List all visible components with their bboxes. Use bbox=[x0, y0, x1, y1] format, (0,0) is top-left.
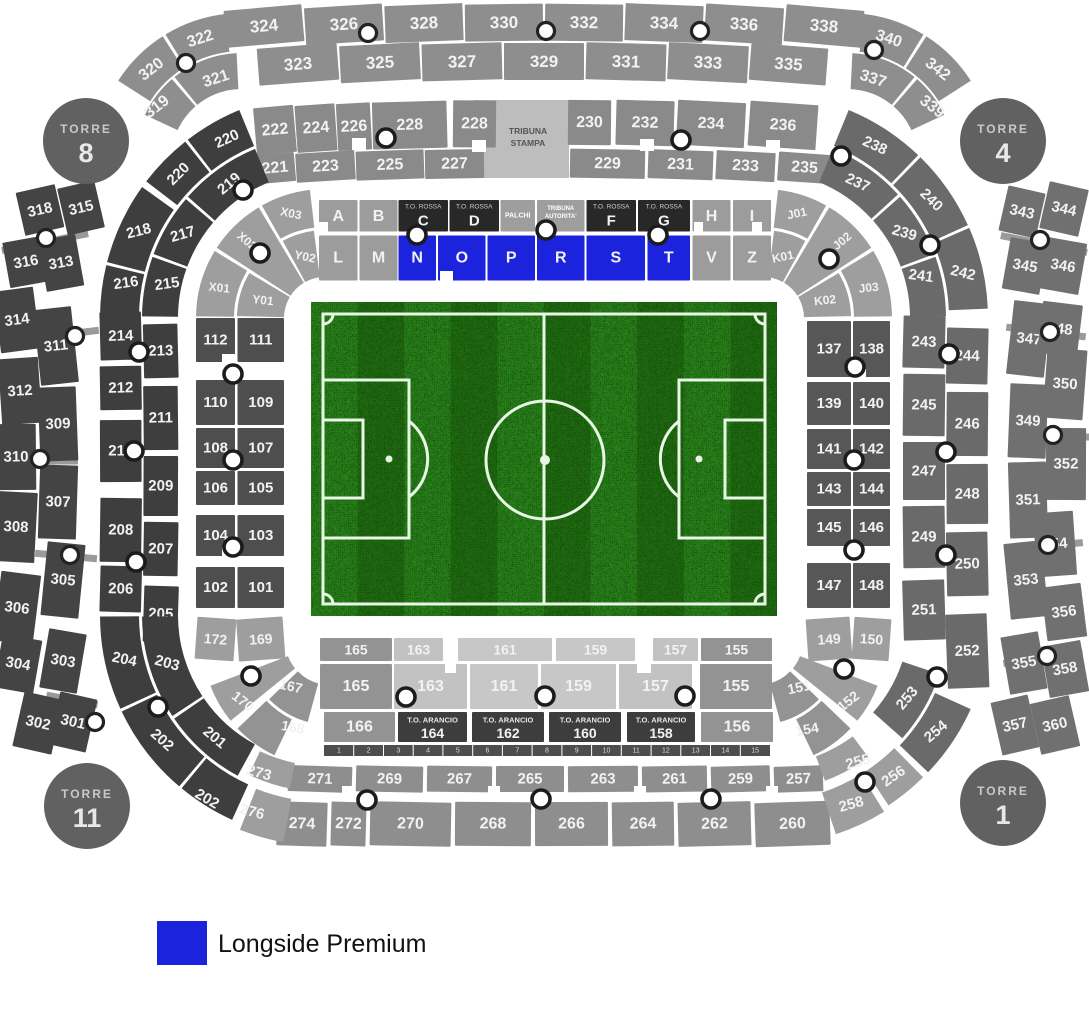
svg-text:257: 257 bbox=[786, 770, 812, 788]
svg-text:333: 333 bbox=[693, 52, 722, 72]
svg-text:229: 229 bbox=[594, 155, 621, 172]
svg-text:306: 306 bbox=[4, 598, 31, 618]
svg-text:140: 140 bbox=[859, 395, 884, 412]
svg-text:D: D bbox=[469, 213, 480, 230]
svg-text:235: 235 bbox=[791, 158, 819, 177]
svg-text:3: 3 bbox=[396, 748, 400, 755]
svg-text:248: 248 bbox=[955, 485, 980, 502]
svg-text:169: 169 bbox=[249, 630, 274, 648]
svg-text:334: 334 bbox=[649, 13, 679, 33]
svg-text:250: 250 bbox=[955, 555, 980, 573]
svg-text:145: 145 bbox=[816, 519, 841, 536]
svg-text:STAMPA: STAMPA bbox=[511, 138, 546, 148]
svg-text:8: 8 bbox=[78, 138, 93, 168]
svg-text:110: 110 bbox=[203, 394, 227, 411]
svg-text:15: 15 bbox=[751, 748, 759, 755]
svg-text:137: 137 bbox=[816, 341, 841, 358]
svg-text:T.O. ARANCIO: T.O. ARANCIO bbox=[407, 716, 458, 725]
svg-text:259: 259 bbox=[728, 770, 753, 788]
svg-text:8: 8 bbox=[545, 748, 549, 755]
svg-text:267: 267 bbox=[447, 770, 472, 787]
svg-text:226: 226 bbox=[340, 118, 368, 136]
svg-text:265: 265 bbox=[517, 770, 542, 787]
svg-text:206: 206 bbox=[108, 580, 133, 598]
svg-text:215: 215 bbox=[153, 274, 180, 294]
svg-text:159: 159 bbox=[565, 678, 592, 695]
svg-text:T.O. ROSSA: T.O. ROSSA bbox=[593, 204, 630, 211]
svg-text:314: 314 bbox=[3, 310, 31, 330]
svg-text:269: 269 bbox=[377, 770, 402, 788]
svg-text:224: 224 bbox=[302, 119, 330, 138]
svg-text:1: 1 bbox=[337, 748, 341, 755]
svg-text:155: 155 bbox=[725, 642, 749, 658]
svg-text:111: 111 bbox=[249, 332, 272, 349]
svg-text:245: 245 bbox=[911, 396, 936, 413]
svg-text:12: 12 bbox=[662, 748, 670, 755]
svg-text:PALCHI: PALCHI bbox=[505, 213, 531, 220]
svg-text:213: 213 bbox=[148, 342, 173, 360]
svg-text:212: 212 bbox=[108, 379, 133, 396]
svg-text:157: 157 bbox=[642, 678, 669, 695]
svg-text:2: 2 bbox=[367, 748, 371, 755]
svg-text:243: 243 bbox=[911, 333, 936, 351]
svg-text:9: 9 bbox=[575, 748, 579, 755]
svg-text:272: 272 bbox=[335, 815, 362, 833]
svg-text:T.O. ROSSA: T.O. ROSSA bbox=[646, 204, 683, 211]
svg-text:233: 233 bbox=[732, 157, 760, 175]
svg-text:222: 222 bbox=[261, 120, 289, 139]
svg-text:236: 236 bbox=[769, 116, 797, 135]
svg-text:234: 234 bbox=[697, 115, 725, 133]
svg-text:106: 106 bbox=[203, 480, 228, 497]
svg-text:T.O. ROSSA: T.O. ROSSA bbox=[405, 204, 442, 211]
svg-text:209: 209 bbox=[148, 477, 173, 494]
svg-text:309: 309 bbox=[45, 415, 71, 433]
svg-text:K02: K02 bbox=[813, 292, 837, 308]
svg-text:F: F bbox=[607, 213, 616, 230]
svg-text:332: 332 bbox=[570, 13, 599, 32]
svg-text:L: L bbox=[333, 250, 343, 267]
svg-text:101: 101 bbox=[248, 579, 273, 596]
svg-text:P: P bbox=[506, 250, 517, 267]
svg-text:232: 232 bbox=[631, 114, 658, 132]
svg-text:246: 246 bbox=[955, 415, 980, 432]
svg-text:214: 214 bbox=[108, 327, 134, 345]
svg-text:160: 160 bbox=[573, 725, 597, 741]
svg-text:TORRE: TORRE bbox=[61, 787, 113, 801]
svg-text:228: 228 bbox=[396, 116, 423, 134]
svg-text:350: 350 bbox=[1052, 375, 1078, 394]
svg-text:109: 109 bbox=[248, 394, 273, 411]
svg-text:148: 148 bbox=[859, 577, 884, 594]
svg-text:260: 260 bbox=[779, 815, 806, 833]
svg-text:11: 11 bbox=[73, 803, 102, 833]
svg-text:144: 144 bbox=[859, 481, 885, 498]
svg-text:161: 161 bbox=[491, 678, 518, 695]
svg-text:308: 308 bbox=[3, 518, 29, 536]
svg-text:X01: X01 bbox=[208, 280, 231, 296]
svg-text:327: 327 bbox=[448, 52, 477, 72]
svg-text:262: 262 bbox=[701, 815, 728, 833]
svg-text:4: 4 bbox=[995, 138, 1010, 168]
svg-text:323: 323 bbox=[283, 54, 313, 75]
svg-text:352: 352 bbox=[1053, 455, 1078, 472]
svg-text:N: N bbox=[411, 250, 423, 267]
svg-text:1: 1 bbox=[995, 800, 1010, 830]
svg-text:M: M bbox=[372, 250, 385, 267]
svg-text:TORRE: TORRE bbox=[977, 122, 1029, 136]
svg-text:V: V bbox=[706, 250, 717, 267]
svg-text:138: 138 bbox=[859, 341, 884, 358]
svg-text:TORRE: TORRE bbox=[977, 784, 1029, 798]
svg-text:266: 266 bbox=[558, 815, 585, 832]
svg-text:158: 158 bbox=[649, 725, 673, 741]
svg-text:159: 159 bbox=[584, 642, 608, 658]
svg-text:11: 11 bbox=[633, 748, 640, 755]
svg-text:5: 5 bbox=[456, 748, 460, 755]
svg-text:264: 264 bbox=[630, 815, 657, 832]
svg-text:336: 336 bbox=[729, 14, 759, 35]
svg-text:207: 207 bbox=[148, 540, 173, 557]
svg-text:H: H bbox=[706, 208, 718, 225]
svg-text:225: 225 bbox=[376, 156, 403, 174]
svg-text:Y01: Y01 bbox=[252, 292, 275, 308]
svg-text:A: A bbox=[332, 208, 344, 225]
svg-text:211: 211 bbox=[149, 409, 173, 426]
svg-text:223: 223 bbox=[312, 157, 340, 176]
svg-text:141: 141 bbox=[816, 441, 841, 458]
svg-text:149: 149 bbox=[817, 630, 842, 648]
svg-text:310: 310 bbox=[3, 448, 28, 465]
svg-text:325: 325 bbox=[365, 52, 394, 72]
svg-text:150: 150 bbox=[859, 630, 884, 648]
svg-text:312: 312 bbox=[7, 382, 33, 401]
svg-text:349: 349 bbox=[1015, 412, 1041, 430]
svg-text:TRIBUNA: TRIBUNA bbox=[547, 206, 575, 212]
svg-text:263: 263 bbox=[590, 770, 615, 787]
svg-text:227: 227 bbox=[441, 155, 468, 172]
svg-text:311: 311 bbox=[43, 336, 69, 355]
svg-text:305: 305 bbox=[50, 570, 77, 589]
svg-text:S: S bbox=[610, 250, 621, 267]
svg-text:139: 139 bbox=[816, 395, 841, 412]
svg-text:165: 165 bbox=[344, 642, 368, 658]
svg-text:338: 338 bbox=[809, 15, 839, 36]
svg-text:T.O. ARANCIO: T.O. ARANCIO bbox=[483, 716, 534, 725]
svg-text:335: 335 bbox=[774, 54, 804, 75]
svg-text:T.O. ARANCIO: T.O. ARANCIO bbox=[560, 716, 611, 725]
svg-text:107: 107 bbox=[248, 440, 273, 457]
svg-text:164: 164 bbox=[421, 725, 445, 741]
svg-text:166: 166 bbox=[346, 719, 373, 736]
svg-text:102: 102 bbox=[203, 579, 228, 596]
svg-text:307: 307 bbox=[45, 493, 71, 511]
svg-text:324: 324 bbox=[249, 15, 279, 36]
svg-text:351: 351 bbox=[1015, 491, 1041, 509]
svg-text:Longside Premium: Longside Premium bbox=[218, 930, 426, 958]
svg-text:165: 165 bbox=[343, 678, 370, 695]
svg-text:230: 230 bbox=[576, 114, 603, 131]
svg-text:161: 161 bbox=[493, 642, 517, 658]
svg-text:157: 157 bbox=[664, 642, 688, 658]
svg-text:228: 228 bbox=[461, 115, 488, 132]
svg-text:156: 156 bbox=[724, 719, 751, 736]
svg-text:TRIBUNA: TRIBUNA bbox=[509, 126, 547, 136]
svg-text:T.O. ROSSA: T.O. ROSSA bbox=[456, 204, 493, 211]
svg-text:B: B bbox=[373, 208, 385, 225]
svg-text:328: 328 bbox=[409, 13, 438, 33]
svg-text:163: 163 bbox=[407, 642, 431, 658]
svg-text:R: R bbox=[555, 250, 567, 267]
svg-text:274: 274 bbox=[288, 815, 315, 833]
svg-text:10: 10 bbox=[603, 748, 611, 755]
svg-text:172: 172 bbox=[203, 630, 228, 648]
svg-text:O: O bbox=[456, 250, 468, 267]
svg-text:329: 329 bbox=[530, 52, 558, 71]
svg-text:T: T bbox=[664, 250, 674, 267]
svg-text:146: 146 bbox=[859, 519, 884, 536]
svg-text:241: 241 bbox=[907, 266, 934, 286]
svg-text:155: 155 bbox=[723, 678, 750, 695]
svg-text:326: 326 bbox=[329, 14, 359, 35]
svg-text:231: 231 bbox=[667, 156, 694, 174]
svg-text:331: 331 bbox=[612, 52, 641, 72]
svg-text:4: 4 bbox=[426, 748, 430, 755]
svg-text:J03: J03 bbox=[858, 280, 880, 296]
svg-text:268: 268 bbox=[480, 815, 507, 832]
svg-text:147: 147 bbox=[816, 577, 841, 594]
svg-text:14: 14 bbox=[722, 748, 730, 755]
svg-text:249: 249 bbox=[911, 528, 936, 545]
svg-text:105: 105 bbox=[248, 480, 273, 497]
svg-text:T.O. ARANCIO: T.O. ARANCIO bbox=[636, 716, 687, 725]
svg-text:162: 162 bbox=[496, 725, 520, 741]
svg-text:103: 103 bbox=[248, 527, 273, 544]
svg-text:252: 252 bbox=[954, 642, 980, 660]
svg-text:7: 7 bbox=[515, 748, 519, 755]
svg-text:AUTORITA': AUTORITA' bbox=[545, 214, 577, 220]
svg-text:208: 208 bbox=[108, 521, 133, 538]
svg-text:247: 247 bbox=[911, 463, 936, 480]
svg-text:330: 330 bbox=[490, 13, 519, 32]
svg-text:261: 261 bbox=[662, 770, 687, 787]
svg-text:6: 6 bbox=[486, 748, 490, 755]
svg-text:TORRE: TORRE bbox=[60, 122, 112, 136]
svg-text:143: 143 bbox=[816, 481, 841, 498]
svg-text:112: 112 bbox=[203, 332, 227, 349]
svg-text:163: 163 bbox=[417, 678, 444, 695]
svg-text:13: 13 bbox=[692, 748, 700, 755]
svg-text:251: 251 bbox=[911, 601, 937, 619]
svg-text:271: 271 bbox=[307, 770, 333, 788]
svg-text:216: 216 bbox=[112, 273, 139, 293]
svg-text:353: 353 bbox=[1013, 570, 1040, 589]
svg-text:356: 356 bbox=[1051, 602, 1078, 622]
svg-text:270: 270 bbox=[397, 815, 424, 833]
svg-text:Z: Z bbox=[747, 250, 757, 267]
